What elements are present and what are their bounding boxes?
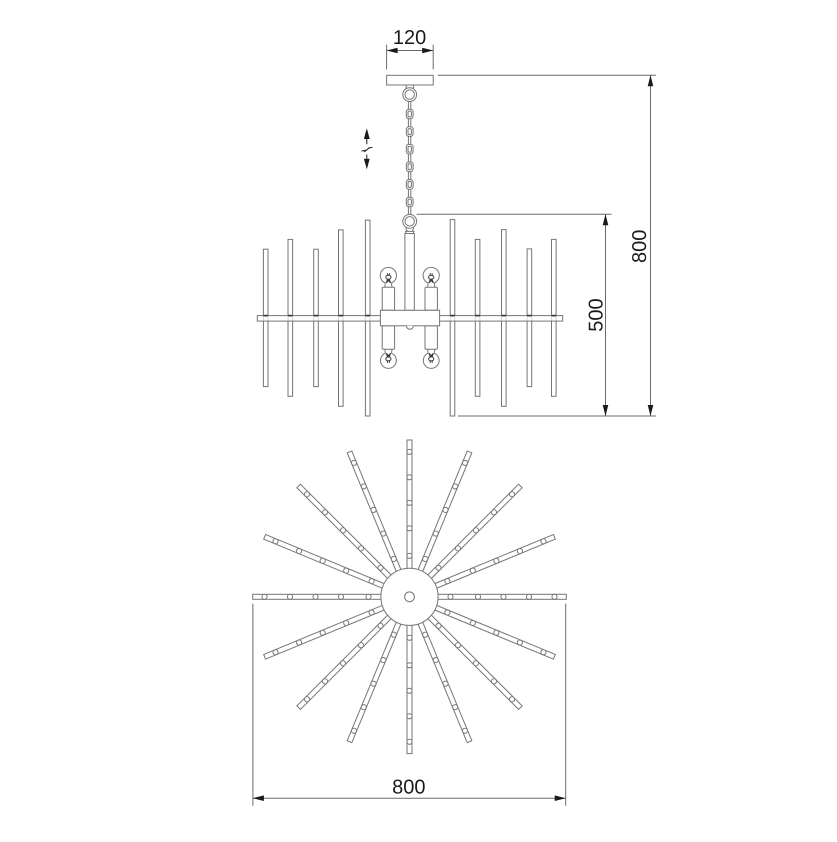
svg-text:120: 120 — [393, 27, 426, 49]
svg-text:800: 800 — [629, 230, 651, 263]
svg-text:800: 800 — [392, 777, 425, 799]
svg-text:500: 500 — [586, 298, 608, 331]
